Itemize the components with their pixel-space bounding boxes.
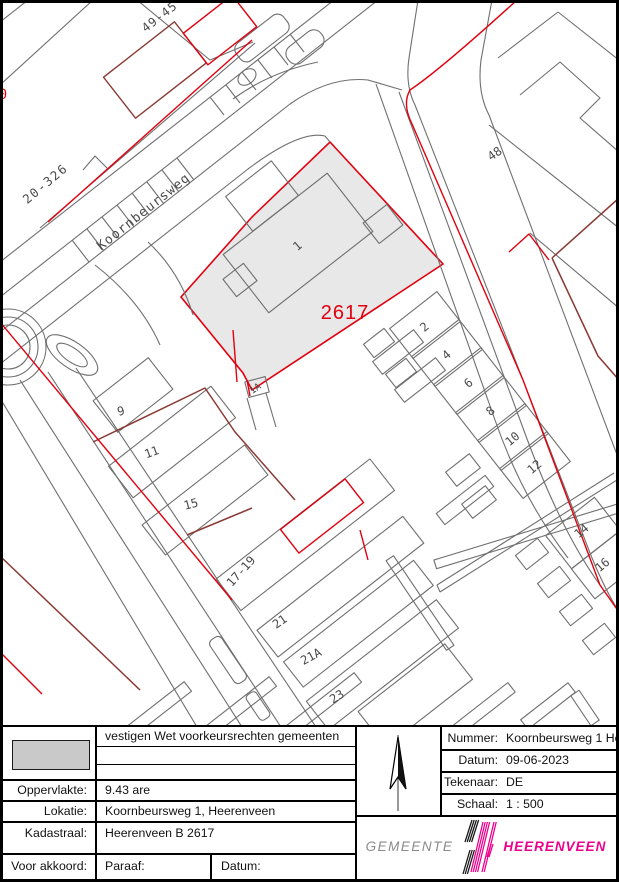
north-arrow: [356, 727, 440, 815]
oppervlakte-value: 9.43 are: [105, 783, 350, 797]
kadastraal-label: Kadastraal:: [3, 826, 87, 840]
logo-text-heerenveen: HEERENVEEN: [503, 839, 606, 854]
oppervlakte-label: Oppervlakte:: [3, 783, 87, 797]
map-label-0: 0: [3, 87, 7, 103]
nummer-label: Nummer:: [442, 731, 498, 745]
map-label-14: 14: [571, 521, 591, 541]
map-label-21A: 21A: [298, 645, 324, 668]
title-block: vestigen Wet voorkeursrechten gemeenten …: [3, 725, 616, 879]
gemeente-heerenveen-logo: GEMEENTE HEERENVEEN: [356, 815, 616, 878]
map-label-Koornbeursweg: Koornbeursweg: [94, 171, 193, 254]
heerenveen-logo-mark: [458, 818, 498, 876]
map-label-48: 48: [485, 144, 505, 164]
kadastraal-value: Heerenveen B 2617: [105, 826, 350, 840]
schaal-value: 1 : 500: [506, 797, 616, 811]
datum-value: 09-06-2023: [506, 753, 616, 767]
map-gray-lines: [3, 3, 616, 725]
map-label-15: 15: [182, 496, 200, 513]
logo-text-gemeente: GEMEENTE: [366, 839, 454, 854]
map-label-11: 11: [142, 443, 160, 461]
lokatie-value: Koornbeursweg 1, Heerenveen: [105, 804, 350, 818]
subject-parcel: [181, 142, 443, 390]
cadastral-map-document: 049-4520-326Koornbeursweg48126171A246810…: [0, 0, 619, 882]
voor-akkoord-label: Voor akkoord:: [3, 859, 87, 873]
map-canvas: 049-4520-326Koornbeursweg48126171A246810…: [3, 3, 616, 725]
map-label-17-19: 17-19: [224, 553, 259, 589]
map-label-12: 12: [524, 457, 544, 477]
purpose-text: vestigen Wet voorkeursrechten gemeenten: [105, 729, 350, 745]
map-label-6: 6: [461, 375, 476, 390]
map-label-2: 2: [417, 319, 432, 334]
map-label-21: 21: [270, 612, 290, 632]
nummer-value: Koornbeursweg 1 Heere: [506, 731, 616, 745]
map-labels: 049-4520-326Koornbeursweg48126171A246810…: [3, 3, 612, 706]
map-label-2617: 2617: [321, 302, 370, 324]
lokatie-label: Lokatie:: [3, 804, 87, 818]
legend-swatch: [12, 740, 90, 770]
map-label-10: 10: [502, 429, 522, 449]
tekenaar-label: Tekenaar:: [439, 775, 498, 789]
map-label-23: 23: [327, 687, 347, 707]
schaal-label: Schaal:: [442, 797, 498, 811]
datum-akkoord-label: Datum:: [221, 859, 351, 873]
paraaf-label: Paraaf:: [105, 859, 205, 873]
tekenaar-value: DE: [506, 775, 616, 789]
datum-label: Datum:: [442, 753, 498, 767]
map-label-8: 8: [483, 403, 498, 418]
map-label-9: 9: [116, 403, 127, 418]
map-label-20-326: 20-326: [20, 160, 71, 206]
map-label-4: 4: [439, 347, 454, 362]
